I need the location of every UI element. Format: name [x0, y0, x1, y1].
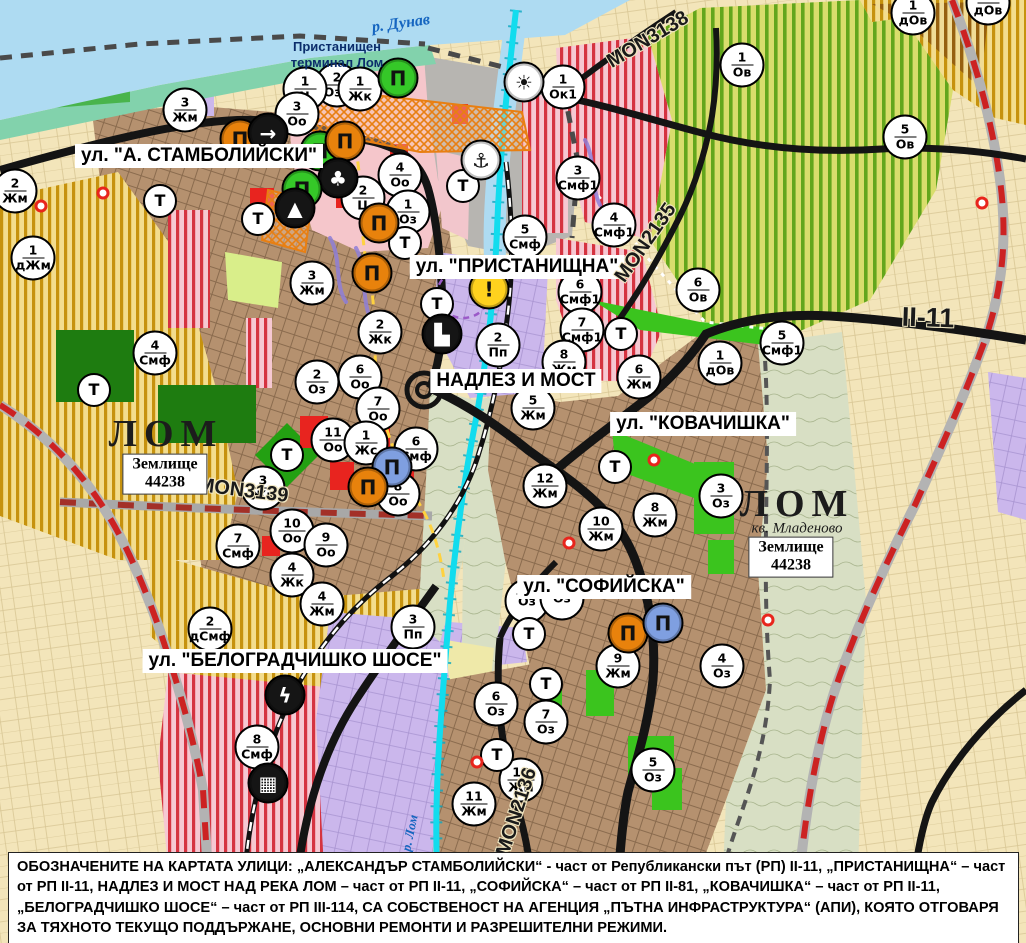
zone-code: Смф	[241, 748, 273, 762]
zone-marker: 10 Жм	[579, 507, 624, 552]
zone-code: Жм	[588, 530, 614, 544]
zone-number: 3	[567, 164, 589, 179]
zone-code: Оо	[390, 176, 409, 190]
zone-code: Жм	[2, 192, 28, 206]
zone-code: Смф1	[558, 179, 599, 193]
point-of-interest-dot	[648, 454, 661, 467]
zone-number: 8	[553, 348, 575, 363]
zone-marker: 4 Жм	[300, 582, 345, 627]
zone-marker: 3 Жм	[290, 261, 335, 306]
zone-code: Жк	[368, 333, 392, 347]
zone-number: 5	[514, 223, 536, 238]
zone-number: 1	[709, 349, 731, 364]
zone-number: 4	[281, 561, 303, 576]
city-label-lom-west: ЛОМ	[109, 412, 224, 456]
zone-number: 12	[531, 472, 558, 487]
zone-code: Жм	[172, 111, 198, 125]
zone-number: 3	[301, 269, 323, 284]
zone-code: Оо	[287, 115, 306, 129]
triangle-icon: ▲	[275, 188, 316, 229]
point-of-interest-dot	[97, 187, 110, 200]
zone-marker: 4 Оз	[700, 644, 745, 689]
zone-code: Смф1	[594, 226, 635, 240]
zone-code: Жм	[299, 284, 325, 298]
zone-number: 3	[710, 482, 732, 497]
zone-marker: 5 Оз	[631, 748, 676, 793]
zone-code: Жк	[348, 90, 372, 104]
zone-code: Оз	[713, 667, 731, 681]
place-label-port-terminal: Пристанищен терминал Лом	[291, 39, 383, 72]
zone-number: 9	[607, 652, 629, 667]
zone-number: 1	[355, 429, 377, 444]
zone-marker: 6 Ов	[676, 268, 721, 313]
zone-number: 7	[571, 316, 593, 331]
zone-code: Жм	[626, 378, 652, 392]
zone-number: 4	[389, 161, 411, 176]
zone-code: Смф	[222, 547, 254, 561]
point-of-interest-dot	[35, 200, 48, 213]
zone-marker: 3 Оз	[699, 474, 744, 519]
zone-number: 2	[369, 318, 391, 333]
point-of-interest-dot	[563, 537, 576, 550]
t-marker: Т	[270, 438, 304, 472]
heritage-icon: Π	[325, 121, 366, 162]
zone-marker: 2 дСмф	[188, 607, 233, 652]
zone-number: 8	[246, 733, 268, 748]
zone-number: 1	[294, 75, 316, 90]
zone-marker: 11 Жм	[452, 782, 497, 827]
zone-code: дСмф	[189, 630, 231, 644]
zone-marker: 3 Пп	[391, 605, 436, 650]
zone-code: Жк	[280, 576, 304, 590]
anchor-icon: ⚓	[461, 140, 502, 181]
zone-code: Жм	[532, 487, 558, 501]
zone-number: 3	[402, 613, 424, 628]
t-marker: Т	[529, 667, 563, 701]
heritage-icon: Π	[348, 467, 389, 508]
map-note-text: ОБОЗНАЧЕНИТЕ НА КАРТАТА УЛИЦИ: „АЛЕКСАНД…	[17, 857, 1010, 939]
lightning-icon: ϟ	[265, 675, 306, 716]
street-label-stamboliyski: ул. "А. СТАМБОЛИЙСКИ"	[75, 144, 323, 168]
zone-code: Оз	[712, 497, 730, 511]
landparcel-label-east: Землище 44238	[748, 537, 833, 578]
zone-marker: 5 Смф1	[760, 321, 805, 366]
zone-marker: 8 Жм	[633, 493, 678, 538]
zone-code: Жм	[520, 409, 546, 423]
zone-number: 7	[535, 708, 557, 723]
zone-number: 1	[902, 0, 924, 14]
zone-number: 1	[22, 244, 44, 259]
zone-number: 5	[894, 123, 916, 138]
zone-number: 2	[199, 615, 221, 630]
zone-number: 4	[311, 590, 333, 605]
zone-code: Оз	[399, 213, 417, 227]
zone-marker: 12 Жм	[523, 464, 568, 509]
zone-code: Жм	[605, 667, 631, 681]
zone-code: Ок1	[549, 88, 577, 102]
zone-number: 2	[487, 331, 509, 346]
t-marker: Т	[480, 738, 514, 772]
zone-marker: 1 Ок1	[541, 65, 586, 110]
zone-code: Оз	[487, 705, 505, 719]
zone-number: 1	[349, 75, 371, 90]
t-marker: Т	[598, 450, 632, 484]
zone-number: 5	[642, 756, 664, 771]
zone-code: Оз	[537, 723, 555, 737]
zone-marker: 5 Смф	[503, 215, 548, 260]
zone-code: Жм	[461, 805, 487, 819]
zone-marker: 2 Жк	[358, 310, 403, 355]
zone-number: 9	[315, 531, 337, 546]
landparcel-label-west: Землище 44238	[122, 454, 207, 495]
heritage-icon: Π	[352, 253, 393, 294]
zoning-map-canvas: 2 Ози 1 Ц 1 Жк 3 Оо 3 Жм 2 Жм 1 дЖм 4 Оо…	[0, 0, 1026, 943]
zone-marker: 2 Оз	[295, 360, 340, 405]
zone-number: 7	[367, 395, 389, 410]
sun-icon: ☀	[504, 62, 545, 103]
zone-code: Смф	[509, 238, 541, 252]
zone-number: 8	[644, 501, 666, 516]
zone-marker: 4 Смф	[133, 331, 178, 376]
t-marker: Т	[241, 202, 275, 236]
point-of-interest-dot	[976, 197, 989, 210]
zone-number: 1	[552, 73, 574, 88]
map-note-box: ОБОЗНАЧЕНИТЕ НА КАРТАТА УЛИЦИ: „АЛЕКСАНД…	[8, 852, 1019, 943]
zone-number: 6	[569, 278, 591, 293]
zone-marker: 1 дЖм	[11, 236, 56, 281]
zone-marker: 7 Оз	[524, 700, 569, 745]
zone-number: 4	[711, 652, 733, 667]
truck-icon: ▙	[422, 314, 463, 355]
zone-number: 6	[485, 690, 507, 705]
zone-number: 5	[771, 329, 793, 344]
zone-number: 6	[405, 435, 427, 450]
zone-code: дОв	[899, 14, 928, 28]
zone-code: Смф1	[762, 344, 803, 358]
zone-number: 4	[144, 339, 166, 354]
zone-number: 10	[587, 515, 614, 530]
zone-code: Ов	[896, 138, 915, 152]
zone-code: Смф1	[560, 293, 601, 307]
t-marker: Т	[77, 373, 111, 407]
zone-marker: 6 Оз	[474, 682, 519, 727]
zone-marker: 9 Оо	[304, 523, 349, 568]
street-label-pristanishtna: ул. "ПРИСТАНИЩНА"	[410, 255, 625, 279]
zone-number: 1	[397, 198, 419, 213]
city-label-lom-mladenovo: ЛОМ	[740, 482, 855, 526]
zone-marker: 5 Ов	[883, 115, 928, 160]
zone-code: дЖм	[15, 259, 51, 273]
zone-marker: 1 Ов	[720, 43, 765, 88]
zone-code: Оз	[644, 771, 662, 785]
zone-marker: 1 Жк	[338, 67, 383, 112]
zone-number: 1	[731, 51, 753, 66]
t-marker: Т	[604, 317, 638, 351]
t-marker: Т	[512, 617, 546, 651]
zone-marker: 2 Пп	[476, 323, 521, 368]
zone-code: Оо	[282, 532, 301, 546]
zone-code: дОв	[706, 364, 735, 378]
zone-marker: 3 Смф1	[556, 156, 601, 201]
zone-marker: 3 Жм	[163, 88, 208, 133]
zone-code: Ов	[689, 291, 708, 305]
t-marker: Т	[143, 184, 177, 218]
zone-code: Оо	[388, 495, 407, 509]
zone-number: 6	[349, 363, 371, 378]
point-of-interest-dot	[471, 756, 484, 769]
road-ref-ii-11: II-11	[901, 302, 955, 335]
street-label-belogradchishko-shose: ул. "БЕЛОГРАДЧИШКО ШОСЕ"	[143, 649, 448, 673]
district-label-mladenovo: кв. Младеново	[752, 521, 843, 538]
zone-code: Жм	[309, 605, 335, 619]
zone-number: 11	[319, 426, 346, 441]
zone-number: 11	[460, 790, 487, 805]
zone-number: 2	[4, 177, 26, 192]
zone-number: 7	[227, 532, 249, 547]
street-label-sofiyska: ул. "СОФИЙСКА"	[517, 575, 691, 599]
zone-code: Пп	[403, 628, 422, 642]
zone-number: 10	[278, 517, 305, 532]
port-facility-icon: Π	[378, 58, 419, 99]
zone-code: Ов	[733, 66, 752, 80]
zone-number: 4	[603, 211, 625, 226]
zone-marker: 7 Смф	[216, 524, 261, 569]
zone-number: 6	[628, 363, 650, 378]
zone-marker: 1 дОв	[698, 341, 743, 386]
point-of-interest-dot	[762, 614, 775, 627]
street-label-kovachishka: ул. "КОВАЧИШКА"	[610, 412, 796, 436]
industry-icon: Π	[643, 603, 684, 644]
club-icon: ♣	[318, 158, 359, 199]
zone-marker: 6 Жм	[617, 355, 662, 400]
zone-number: 5	[522, 394, 544, 409]
zone-code: Оо	[316, 546, 335, 560]
zone-number: 6	[687, 276, 709, 291]
zone-code: Оо	[323, 441, 342, 455]
zone-marker: 4 Смф1	[592, 203, 637, 248]
railway-crossing-icon: ▦	[248, 763, 289, 804]
zone-code: Оз	[308, 383, 326, 397]
zone-code: Смф	[139, 354, 171, 368]
zone-number: 2	[306, 368, 328, 383]
zone-code: Пп	[488, 346, 507, 360]
zone-code: дОв	[974, 4, 1003, 18]
heritage-icon: Π	[359, 203, 400, 244]
zone-number: 3	[286, 100, 308, 115]
street-label-nadlez-i-most: НАДЛЕЗ И МОСТ	[430, 369, 601, 393]
zone-number: 3	[174, 96, 196, 111]
zone-code: Жм	[642, 516, 668, 530]
